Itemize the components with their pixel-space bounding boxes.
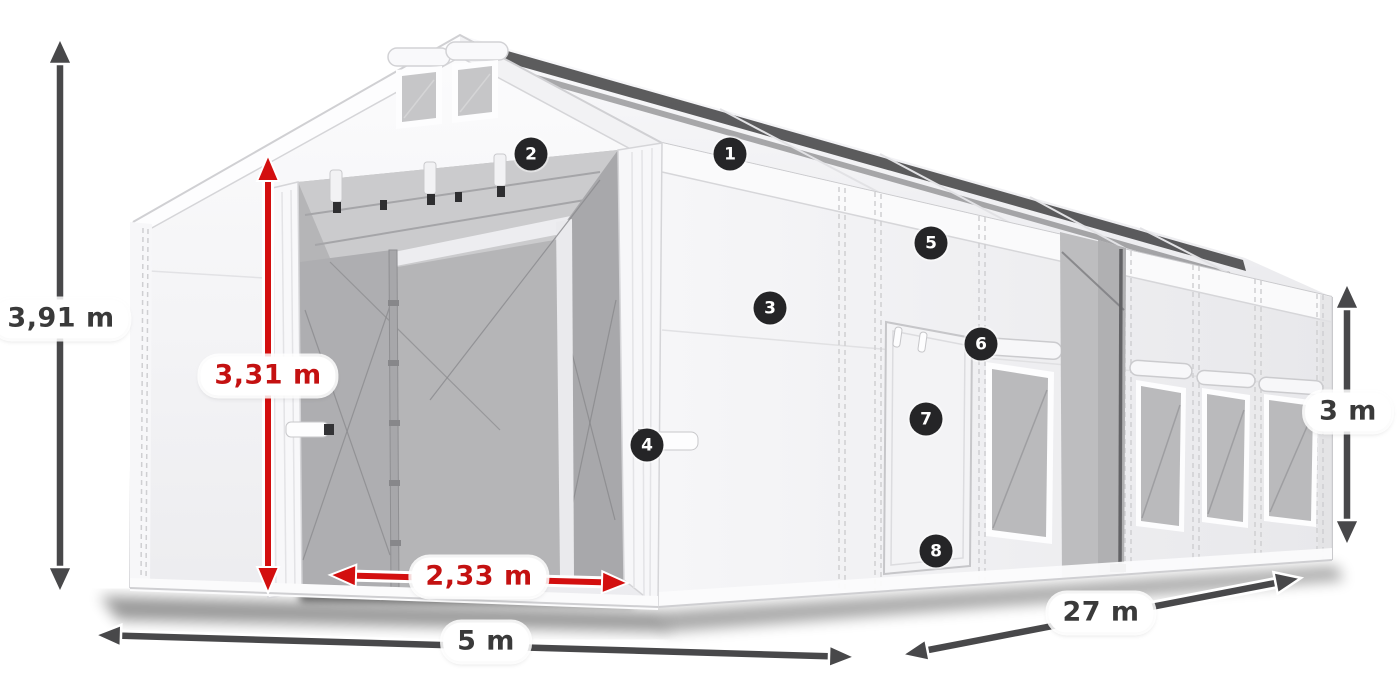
callout-badge-2: 2 (515, 138, 548, 171)
callout-badge-5: 5 (915, 227, 948, 260)
callout-badge-7: 7 (910, 403, 943, 436)
callout-badge-3: 3 (754, 292, 787, 325)
callout-badge-4: 4 (631, 429, 664, 462)
dimension-label-door-width: 2,33 m (411, 557, 546, 596)
tent-illustration (0, 0, 1400, 700)
dimension-label-side-height: 3 m (1305, 392, 1391, 431)
callout-badge-6: 6 (965, 328, 998, 361)
tent-dimension-diagram: 3,91 m 3,31 m 2,33 m 5 m 27 m 3 m 1 2 3 … (0, 0, 1400, 700)
front-doorway (298, 150, 624, 594)
dimension-label-length: 27 m (1048, 593, 1153, 632)
dimension-label-overall-height: 3,91 m (0, 299, 129, 338)
dimension-label-width: 5 m (443, 622, 529, 661)
callout-badge-8: 8 (920, 535, 953, 568)
interior-mesh-left (300, 250, 394, 592)
side-open-section (1060, 232, 1126, 579)
dimension-label-door-height: 3,31 m (200, 356, 335, 395)
callout-badge-1: 1 (714, 138, 747, 171)
